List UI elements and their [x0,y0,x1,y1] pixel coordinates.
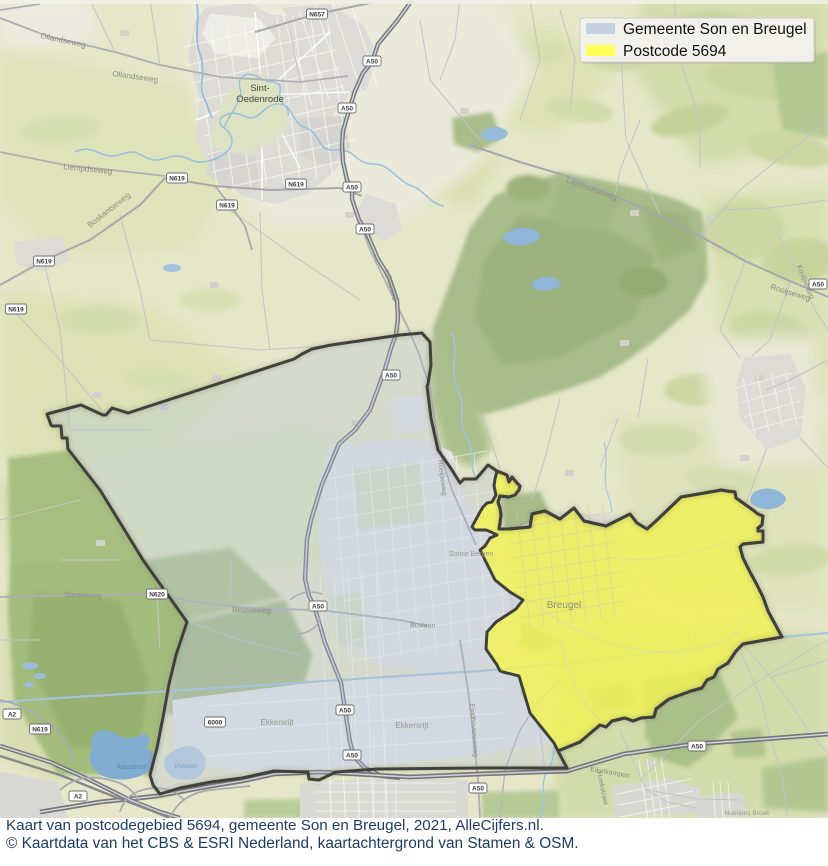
svg-text:A50: A50 [812,281,824,288]
svg-text:A50: A50 [385,372,397,379]
svg-text:N619: N619 [8,306,24,313]
svg-text:Sonse Bergen: Sonse Bergen [449,551,493,558]
svg-text:Kaart van postcodegebied 5694,: Kaart van postcodegebied 5694, gemeente … [6,817,544,834]
svg-text:Sint-: Sint- [250,83,270,94]
svg-text:© Kaartdata van het CBS & ESRI: © Kaartdata van het CBS & ESRI Nederland… [6,835,579,852]
svg-text:N619: N619 [288,181,304,188]
svg-text:A50: A50 [359,226,371,233]
svg-text:Postcode 5694: Postcode 5694 [623,43,727,60]
svg-text:A2: A2 [8,711,17,718]
svg-text:N620: N620 [149,591,165,598]
svg-text:A50: A50 [346,184,358,191]
svg-text:N619: N619 [32,726,48,733]
svg-text:Oedenrode: Oedenrode [236,94,284,105]
svg-text:Nuenens Broek: Nuenens Broek [725,810,771,817]
svg-text:A50: A50 [312,603,324,610]
svg-text:N657: N657 [309,11,325,18]
svg-text:Bestseweg: Bestseweg [232,605,271,615]
svg-text:Aquabest: Aquabest [115,764,147,771]
svg-text:N619: N619 [169,175,185,182]
svg-text:A50: A50 [691,743,703,750]
svg-text:Boslaan: Boslaan [410,622,436,630]
svg-text:A50: A50 [346,752,358,759]
svg-text:Ekkersrijt: Ekkersrijt [396,721,430,730]
svg-text:Sonseweg: Sonseweg [64,590,102,600]
svg-text:Ekkersrijt: Ekkersrijt [261,718,295,727]
svg-text:Breugel: Breugel [547,600,581,611]
svg-text:A50: A50 [339,707,351,714]
svg-text:6000: 6000 [208,719,223,726]
svg-text:Vresven: Vresven [174,763,198,770]
svg-text:N619: N619 [219,202,235,209]
svg-text:A50: A50 [366,58,378,65]
svg-text:A50: A50 [472,785,484,792]
svg-text:A50: A50 [341,105,353,112]
svg-text:Gemeente Son en Breugel: Gemeente Son en Breugel [623,21,807,38]
svg-text:N619: N619 [36,258,52,265]
svg-text:A2: A2 [74,793,83,800]
